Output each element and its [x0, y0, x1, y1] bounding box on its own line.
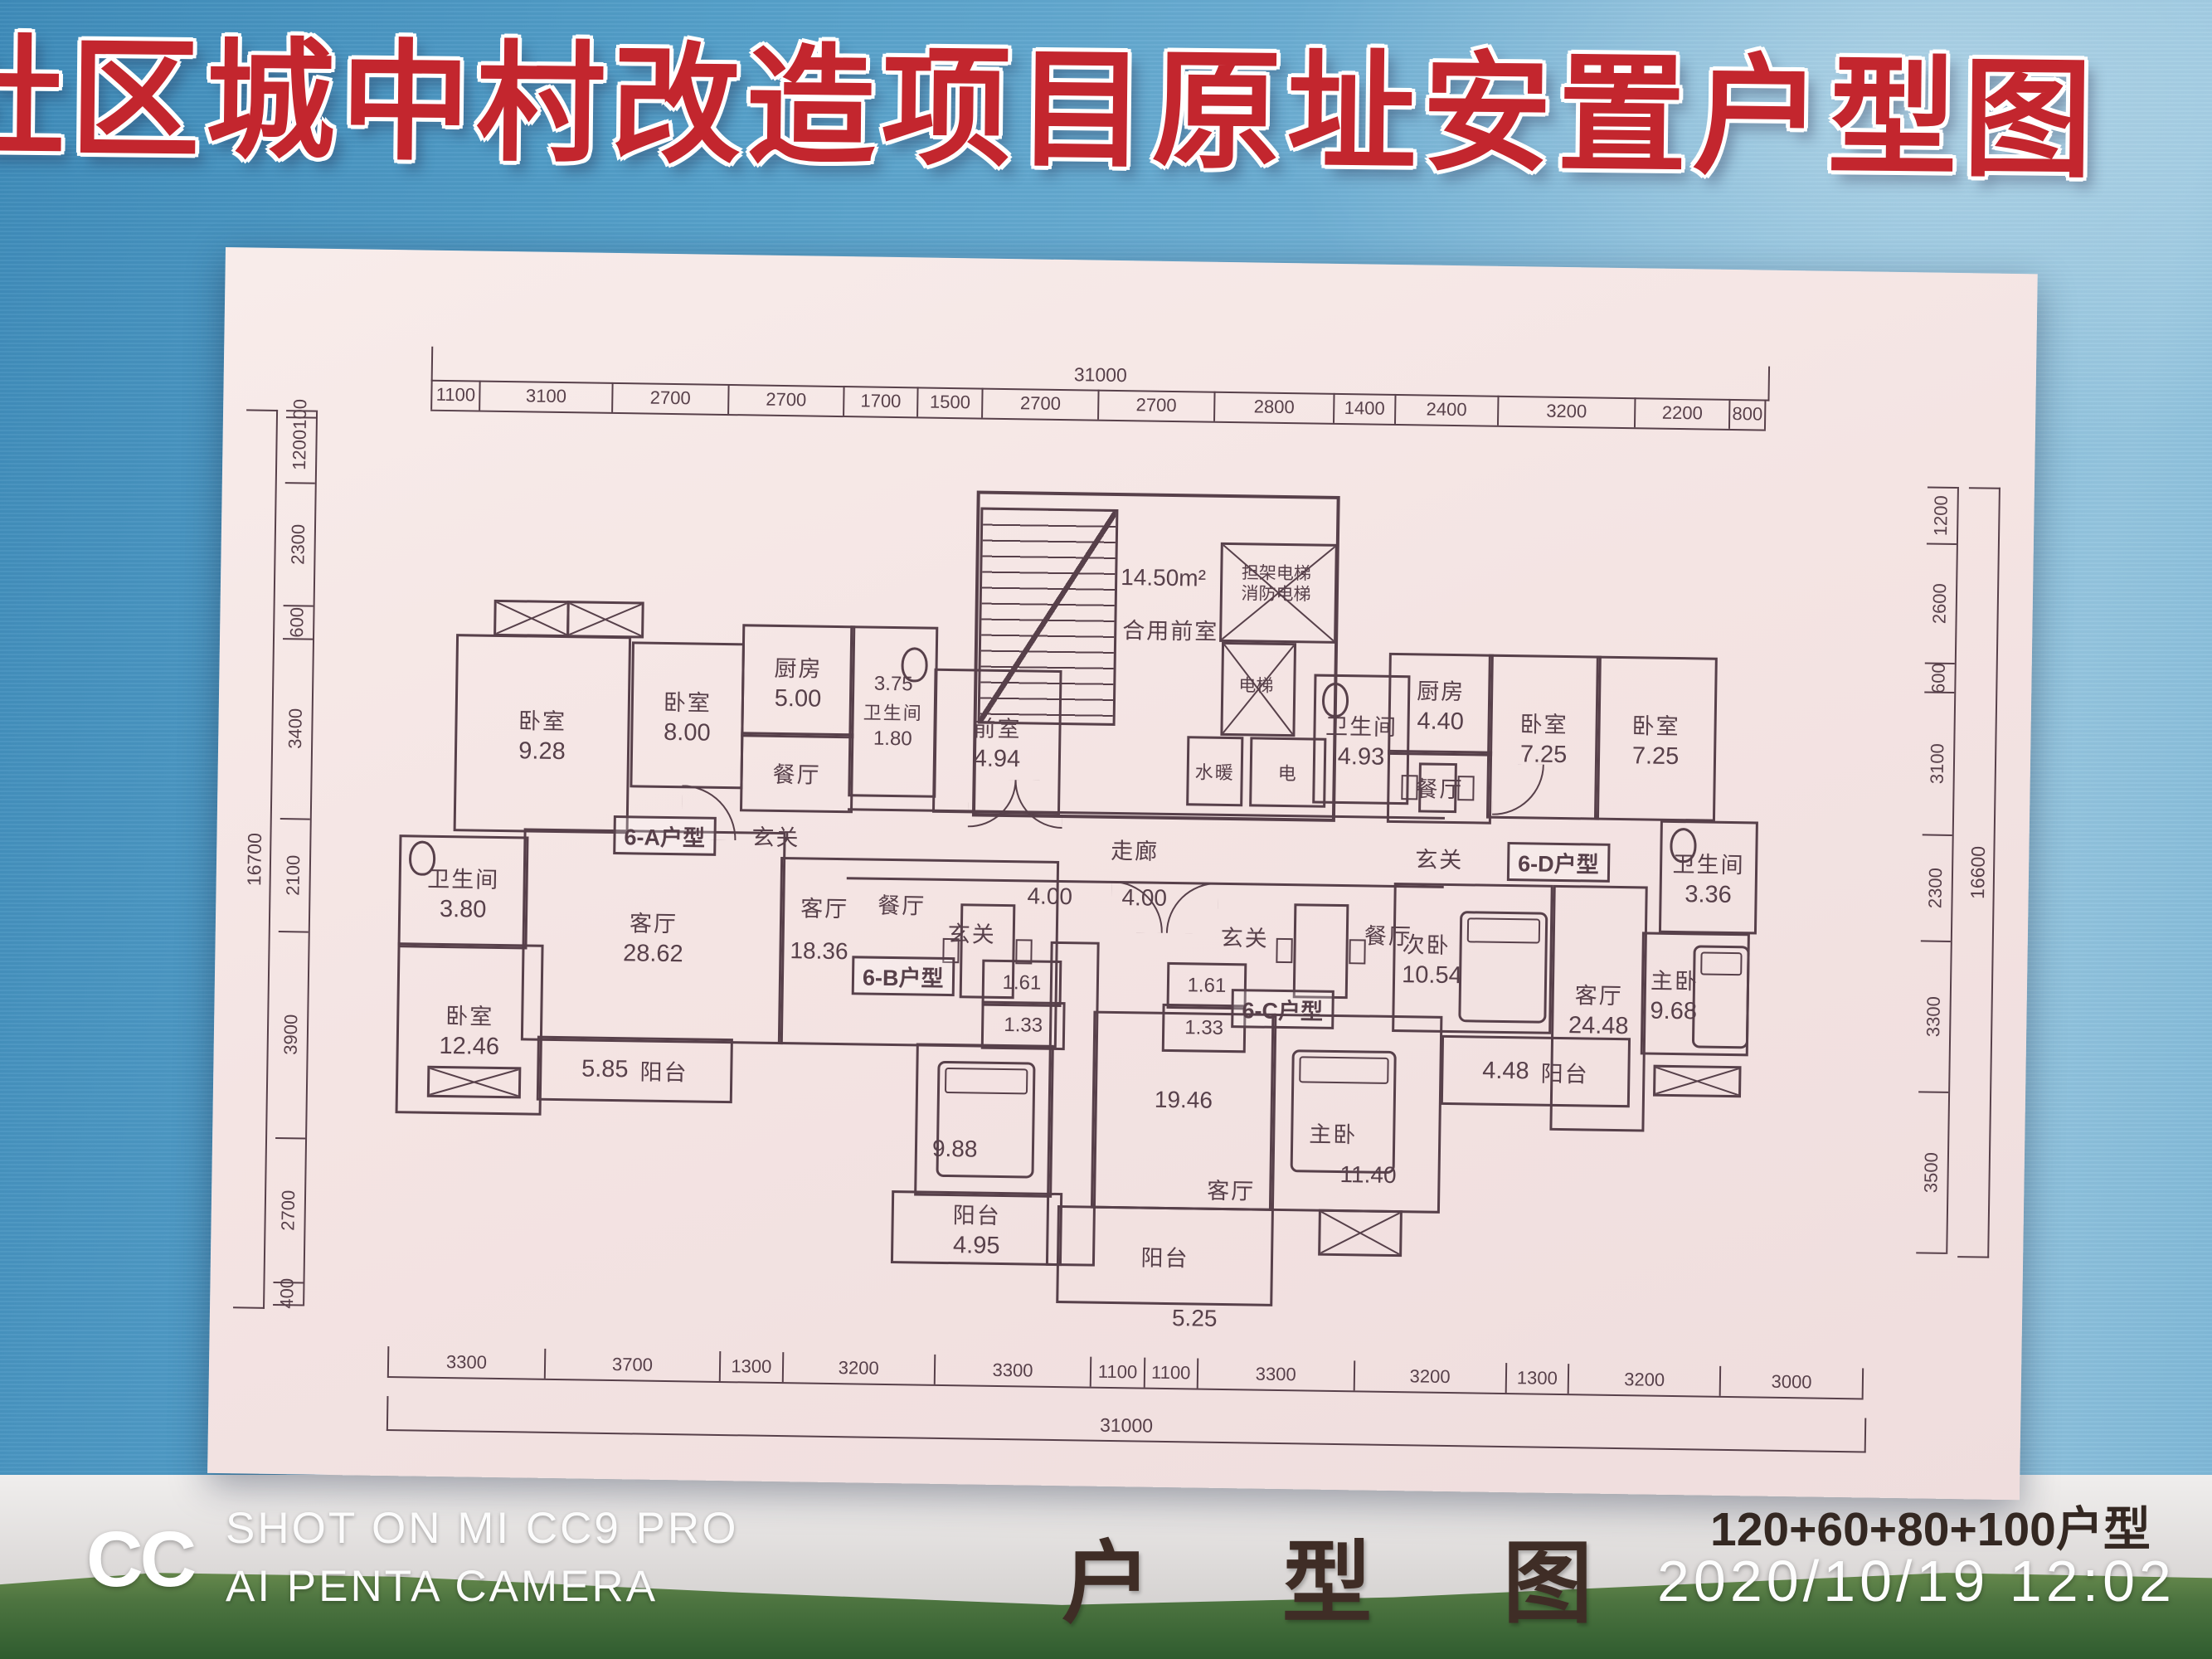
room-area: 4.40 — [1417, 708, 1464, 736]
room-a-balcony: 5.85 阳台 — [537, 1036, 733, 1103]
room-area: 4.93 — [1338, 742, 1385, 771]
room-area: 1.61 — [1187, 974, 1226, 998]
room-area: 1.33 — [1004, 1014, 1043, 1038]
room-label: 阳台 — [1540, 1055, 1589, 1088]
room-area: 9.68 — [1650, 997, 1697, 1025]
room-area: 4.95 — [953, 1232, 1000, 1260]
elevator-label-line1: 担架电梯 — [1242, 563, 1311, 583]
elevator-label: 担架电梯 消防电梯 — [1223, 562, 1330, 606]
room-label: 水暖 — [1195, 757, 1235, 785]
badge-unit-d: 6-D户型 — [1507, 842, 1610, 883]
room-a-dining: 餐厅 — [740, 732, 853, 813]
room-area: 5.00 — [775, 684, 822, 713]
toilet-icon — [1670, 828, 1697, 863]
left-dimension-chain: 100120023006003400210039002700400 — [273, 410, 318, 1306]
billboard-title: 社区城中村改造项目原址安置户型图 — [0, 0, 2212, 205]
balcony-hatch — [1653, 1065, 1742, 1098]
room-b-balcony: 阳台 4.95 — [891, 1190, 1062, 1266]
room-area: 24.48 — [1568, 1012, 1629, 1040]
bed-icon — [1692, 945, 1750, 1048]
right-overall-dimension: 16600 — [1957, 487, 2001, 1258]
room-d-kitchen: 厨房 4.40 — [1388, 653, 1494, 757]
label-d-hall: 玄关 — [1415, 841, 1464, 874]
door-arc — [681, 785, 737, 840]
room-area: 19.46 — [1155, 1087, 1213, 1114]
floorplan-poster: 31000 1100310027002700170015002700270028… — [207, 247, 2038, 1500]
ac-platform-hatch — [566, 601, 644, 638]
bottom-dimension-chain: 3300370013003200330011001100330032001300… — [387, 1346, 1864, 1399]
toilet-icon — [1322, 683, 1349, 718]
room-label: 厨房 — [774, 649, 823, 683]
room-area: 28.62 — [623, 940, 683, 968]
room-label: 餐厅 — [878, 888, 926, 921]
room-area: 18.36 — [790, 937, 848, 965]
room-label: 客厅 — [800, 890, 849, 923]
room-area: 5.85 — [581, 1055, 629, 1083]
staircase — [978, 508, 1119, 726]
room-d-balcony: 4.48 阳台 — [1441, 1035, 1631, 1107]
room-label: 阳台 — [1140, 1239, 1189, 1272]
camera-watermark-line2: AI PENTA CAMERA — [226, 1561, 658, 1612]
room-label: 阳台 — [639, 1053, 688, 1087]
room-area: 5.25 — [1172, 1305, 1218, 1332]
balcony-hatch — [1318, 1209, 1403, 1257]
label-b-hall: 玄关 — [948, 916, 997, 949]
room-label: 阳台 — [953, 1197, 1002, 1230]
room-label: 卧室 — [664, 684, 712, 717]
bed-icon — [1458, 911, 1548, 1024]
room-a-living: 客厅 28.62 — [521, 828, 786, 1044]
label-c-hall: 玄关 — [1221, 920, 1270, 953]
room-area: 1.80 — [873, 727, 912, 752]
elevator-label-line1: 电梯 — [1238, 676, 1273, 696]
bed-icon — [1291, 1049, 1397, 1174]
label-b-hall-area: 4.00 — [1027, 883, 1072, 910]
room-label: 卧室 — [445, 998, 494, 1031]
room-area: 3.36 — [1685, 881, 1732, 909]
room-a-bedroom1: 卧室 9.28 — [454, 634, 632, 834]
label-a-hall: 玄关 — [751, 819, 800, 852]
footer-plan-title: 户型图 — [1062, 1511, 1723, 1641]
room-area: 3.80 — [440, 895, 487, 923]
core-vestibule-label: 合用前室 — [1122, 612, 1219, 646]
room-area: 12.46 — [439, 1032, 499, 1060]
left-overall-dimension: 16700 — [233, 409, 278, 1308]
photo-of-billboard: 社区城中村改造项目原址安置户型图 31000 11003100270027001… — [0, 0, 2212, 1659]
toilet-icon — [901, 647, 928, 682]
right-dimension-chain: 120026006003100230033003500 — [1916, 486, 1959, 1253]
dining-table-icon — [1418, 762, 1457, 813]
room-label: 卧室 — [518, 703, 567, 736]
elevator-label-line2: 消防电梯 — [1241, 584, 1310, 604]
room-label: 卧室 — [1519, 706, 1568, 739]
core-vestibule-area: 14.50m² — [1121, 564, 1206, 592]
toilet-icon — [409, 840, 436, 875]
badge-unit-b: 6-B户型 — [852, 956, 955, 996]
room-label: 餐厅 — [1364, 917, 1413, 951]
dining-table-icon — [1293, 903, 1349, 999]
room-area: 9.28 — [518, 737, 566, 766]
corridor-label: 走廊 — [1111, 833, 1159, 866]
room-label: 厨房 — [1417, 673, 1466, 706]
room-area: 9.88 — [932, 1136, 978, 1163]
room-label: 卧室 — [1631, 708, 1680, 741]
room-area: 11.40 — [1339, 1161, 1396, 1189]
room-d-bedroom2: 卧室 7.25 — [1594, 656, 1718, 822]
camera-logo: CC — [86, 1515, 193, 1605]
room-area: 1.61 — [1002, 971, 1041, 995]
room-c-balcony: 阳台 — [1056, 1205, 1274, 1306]
shaft-water-heating: 水暖 — [1186, 736, 1243, 806]
room-a-kitchen: 厨房 5.00 — [741, 624, 855, 738]
ac-platform-hatch — [493, 600, 570, 637]
elevator-label: 电梯 — [1223, 675, 1289, 697]
room-area: 8.00 — [664, 718, 711, 747]
room-a-bath2: 3.75 卫生间 1.80 — [848, 625, 938, 798]
room-label: 电 — [1277, 759, 1297, 786]
room-label: 客厅 — [1207, 1173, 1256, 1206]
room-label: 卫生间 — [427, 860, 500, 893]
room-area: 10.54 — [1402, 961, 1462, 990]
room-label: 餐厅 — [772, 756, 821, 789]
camera-watermark-line1: SHOT ON MI CC9 PRO — [226, 1503, 738, 1554]
balcony-hatch — [427, 1066, 522, 1099]
room-label: 卫生间 — [863, 698, 923, 725]
room-label: 主卧 — [1309, 1116, 1358, 1149]
door-arc — [1166, 882, 1218, 934]
room-label: 主卧 — [1650, 962, 1699, 995]
room-area: 4.48 — [1482, 1057, 1529, 1085]
room-area: 7.25 — [1632, 742, 1680, 771]
room-a-bedroom2: 卧室 8.00 — [630, 641, 745, 789]
photo-timestamp: 2020/10/19 12:02 — [1657, 1548, 2176, 1614]
room-label: 客厅 — [630, 905, 678, 938]
room-label: 客厅 — [1575, 977, 1624, 1010]
bottom-overall-dimension: 31000 — [386, 1396, 1866, 1452]
